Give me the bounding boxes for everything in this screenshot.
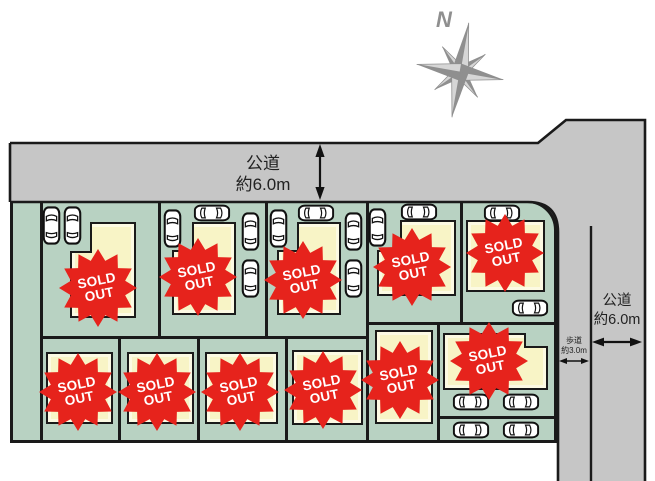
car-icon (499, 421, 543, 439)
car-icon (344, 256, 363, 301)
lot-boundary-line (366, 322, 557, 325)
lot-boundary-line (40, 336, 369, 339)
sold-out-label: SOLD OUT (387, 249, 437, 285)
sold-out-label: SOLD OUT (53, 374, 103, 410)
sidewalk-name: 歩道 (566, 335, 582, 345)
car-icon (397, 203, 441, 221)
car-icon (510, 299, 550, 317)
car-icon (294, 204, 338, 222)
right-road-width: 約6.0m (594, 311, 641, 328)
car-icon (344, 209, 363, 254)
sold-out-label: SOLD OUT (480, 235, 530, 271)
lot-boundary-line (265, 200, 268, 336)
car-icon (449, 421, 493, 439)
top-road-label-group: 公道 約6.0m (236, 144, 325, 200)
car-icon (499, 393, 543, 411)
right-road-label-group: 公道 約6.0m (592, 292, 642, 346)
site-plan: SOLD OUT SOLD OUT SOLD OUT SOLD OUT SOLD… (0, 0, 655, 481)
lot-boundary-line (197, 336, 200, 443)
car-icon (269, 206, 288, 251)
right-road-name: 公道 (603, 292, 632, 309)
right-road-width-arrow-icon (592, 338, 642, 347)
sold-out-label: SOLD OUT (73, 270, 123, 306)
sold-out-label: SOLD OUT (375, 362, 425, 398)
sold-out-label: SOLD OUT (173, 259, 223, 295)
sold-out-label: SOLD OUT (278, 262, 328, 298)
building-notch (524, 333, 548, 348)
car-icon (190, 204, 234, 222)
top-road-name: 公道 (246, 154, 280, 173)
compass-north-label: N (436, 7, 453, 32)
sold-out-label: SOLD OUT (132, 374, 182, 410)
lot-boundary-line (437, 322, 440, 443)
car-icon (42, 203, 61, 248)
sold-out-label: SOLD OUT (215, 374, 265, 410)
lot-boundary-line (460, 200, 463, 322)
top-road-width: 約6.0m (236, 175, 291, 194)
sold-out-label: SOLD OUT (298, 372, 348, 408)
lot-boundary-line (437, 416, 557, 419)
top-road-width-arrow-icon (315, 144, 324, 200)
lot-boundary-line (158, 200, 161, 336)
estate-block: SOLD OUT SOLD OUT SOLD OUT SOLD OUT SOLD… (10, 200, 557, 443)
car-icon (368, 205, 387, 250)
lot-boundary-line (118, 336, 121, 443)
car-icon (241, 209, 260, 254)
sidewalk-width: 約3.0m (561, 345, 587, 355)
sold-out-label: SOLD OUT (464, 343, 514, 379)
sidewalk-width-arrow-icon (559, 358, 589, 364)
compass-star (409, 15, 512, 125)
sidewalk-label-group: 歩道 約3.0m (559, 335, 589, 364)
car-icon (63, 203, 82, 248)
compass-rose: N (398, 0, 528, 125)
car-icon (241, 256, 260, 301)
